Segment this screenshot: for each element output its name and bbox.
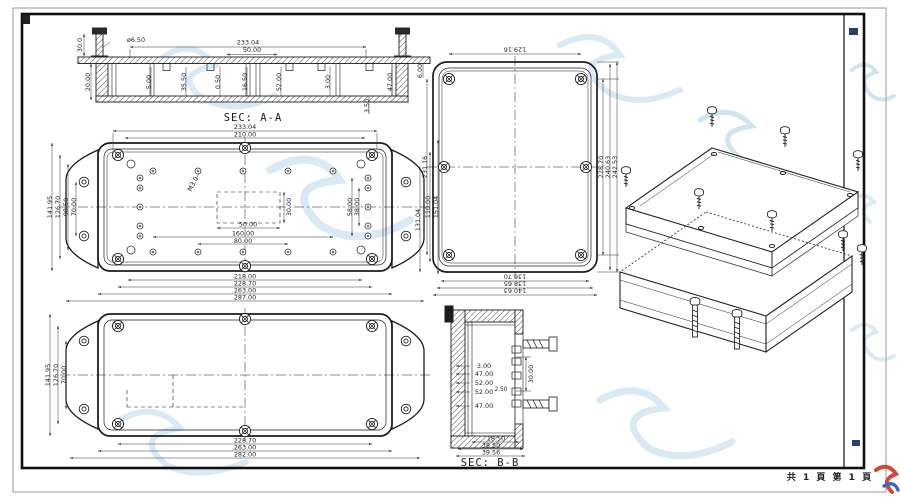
lid-dim-13670: 136.70 (504, 273, 526, 281)
drawing-canvas: 共 1 頁 第 1 頁 ø6.50 30.0 (0, 0, 900, 500)
dim-5200: 52.00 (275, 73, 283, 91)
lid-dim-24253: 242.53 (611, 156, 619, 178)
column-stamp-mark (849, 28, 858, 35)
plan-dim-3000: 30.00 (285, 198, 293, 216)
back-dim-7000: 70.00 (60, 366, 68, 384)
plan-dim-7000: 70.00 (70, 198, 78, 216)
dim-600: 6.00 (416, 64, 424, 78)
plan-dim-12670: 126.70 (54, 196, 62, 218)
dim-350: 3.50 (363, 99, 371, 113)
plan-dim-5000: 50.00 (239, 221, 257, 229)
back-dim-28200: 282.00 (234, 451, 256, 459)
dim-050: 0.50 (214, 75, 222, 89)
bb-dim-300: 3.00 (477, 362, 491, 370)
page-note: 共 1 頁 第 1 頁 (787, 471, 873, 483)
lid-dim-13104: 131.04 (414, 209, 422, 231)
dim-3550: 35.50 (180, 73, 188, 91)
lid-dim-23116: 231.16 (421, 156, 429, 178)
label-sec-bb: SEC: B-B (461, 457, 520, 469)
dim-5000: 50.00 (243, 46, 261, 54)
bb-dim-5200a: 52.00 (475, 379, 493, 387)
dim-300: 3.00 (324, 75, 332, 89)
lid-dim-12916: 129.16 (504, 46, 526, 54)
dim-1650: 16.50 (241, 73, 249, 91)
plan-dim-9850: 98.50 (62, 198, 70, 216)
bb-dim-3000: 30.00 (527, 365, 535, 383)
bb-dim-4700a: 47.00 (475, 370, 493, 378)
plan-dim-11000: 110.00 (424, 196, 432, 218)
dim-dia-650: ø6.50 (127, 36, 145, 44)
view-back (60, 308, 430, 442)
plan-dim-8000: 80.00 (234, 237, 252, 245)
plan-dim-14195: 141.95 (46, 196, 54, 218)
back-dim-14195: 141.95 (44, 364, 52, 386)
lid-dim-13865: 138.65 (504, 280, 526, 288)
lid-dim-14063: 140.63 (504, 287, 526, 295)
dim-4700: 47.00 (386, 73, 394, 91)
back-dim-12670: 126.70 (52, 364, 60, 386)
plan-dim-3800: 38.00 (353, 198, 361, 216)
bb-dim-3956: 39.56 (482, 449, 500, 457)
plan-dim-21000: 210.00 (234, 131, 256, 139)
bb-dim-250: 2.50 (495, 387, 508, 393)
dim-30: 30.0 (76, 38, 84, 52)
plan-dim-28700: 287.00 (234, 294, 256, 302)
lid-screw-section (445, 306, 453, 322)
dim-500: 5.00 (145, 75, 153, 89)
drawing-sheet: 共 1 頁 第 1 頁 ø6.50 30.0 (0, 0, 900, 500)
bb-dim-4700b: 47.00 (475, 402, 493, 410)
corner-stamp-mark (23, 15, 30, 24)
bb-dim-5200b: 52.00 (475, 388, 493, 396)
column-stamp-mark-2 (852, 440, 860, 446)
dim-2000: 20.00 (84, 73, 92, 91)
